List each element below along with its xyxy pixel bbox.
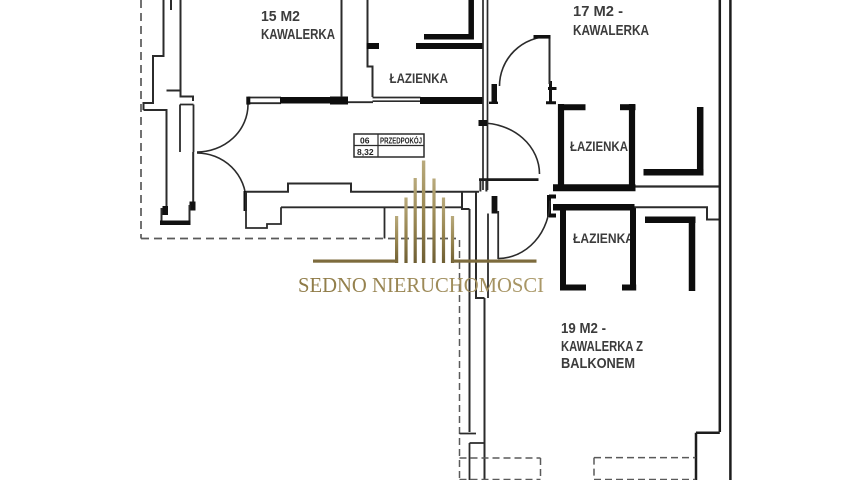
svg-text:8,32: 8,32 [357,147,374,157]
svg-text:ŁAZIENKA: ŁAZIENKA [573,231,634,246]
svg-text:KAWALERKA: KAWALERKA [261,27,335,43]
svg-text:19 M2 -: 19 M2 - [561,321,606,337]
svg-text:KAWALERKA: KAWALERKA [573,23,649,39]
svg-text:ŁAZIENKA: ŁAZIENKA [570,139,628,154]
svg-text:ŁAZIENKA: ŁAZIENKA [390,71,449,86]
svg-text:06: 06 [360,136,370,146]
svg-text:KAWALERKA Z: KAWALERKA Z [561,339,643,355]
svg-text:BALKONEM: BALKONEM [561,356,635,372]
svg-text:15 M2: 15 M2 [261,9,300,25]
svg-text:SEDNO NIERUCHOMOSCI: SEDNO NIERUCHOMOSCI [298,273,544,297]
svg-text:17 M2 -: 17 M2 - [573,4,623,20]
svg-text:PRZEDPOKÓJ: PRZEDPOKÓJ [380,135,422,146]
